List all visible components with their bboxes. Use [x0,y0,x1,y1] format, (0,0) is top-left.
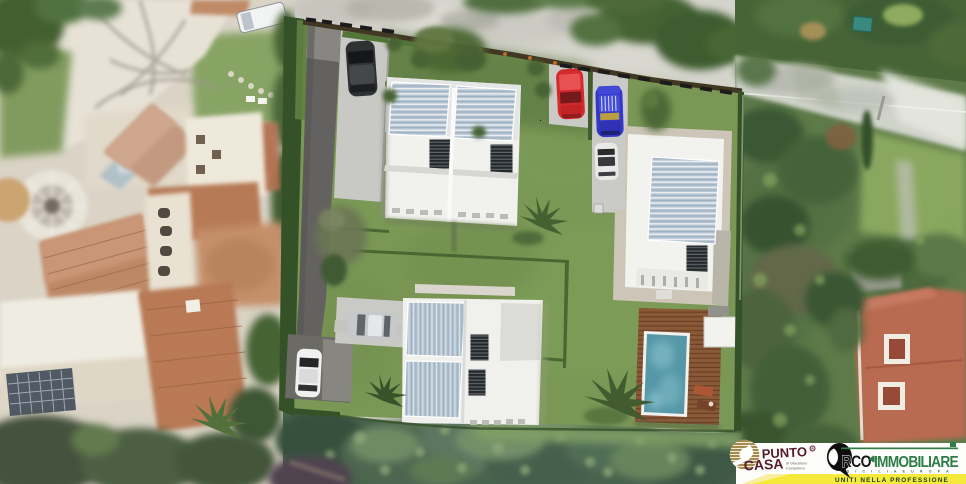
svg-text:UNITI NELLA PROFESSIONE: UNITI NELLA PROFESSIONE [835,477,949,484]
svg-text:Costantino: Costantino [786,467,806,471]
svg-text:S I C I L I A E U R O P A: S I C I L I A E U R O P A [847,470,952,474]
svg-text:di Giacalone: di Giacalone [786,462,807,466]
svg-text:CASA: CASA [743,455,783,473]
